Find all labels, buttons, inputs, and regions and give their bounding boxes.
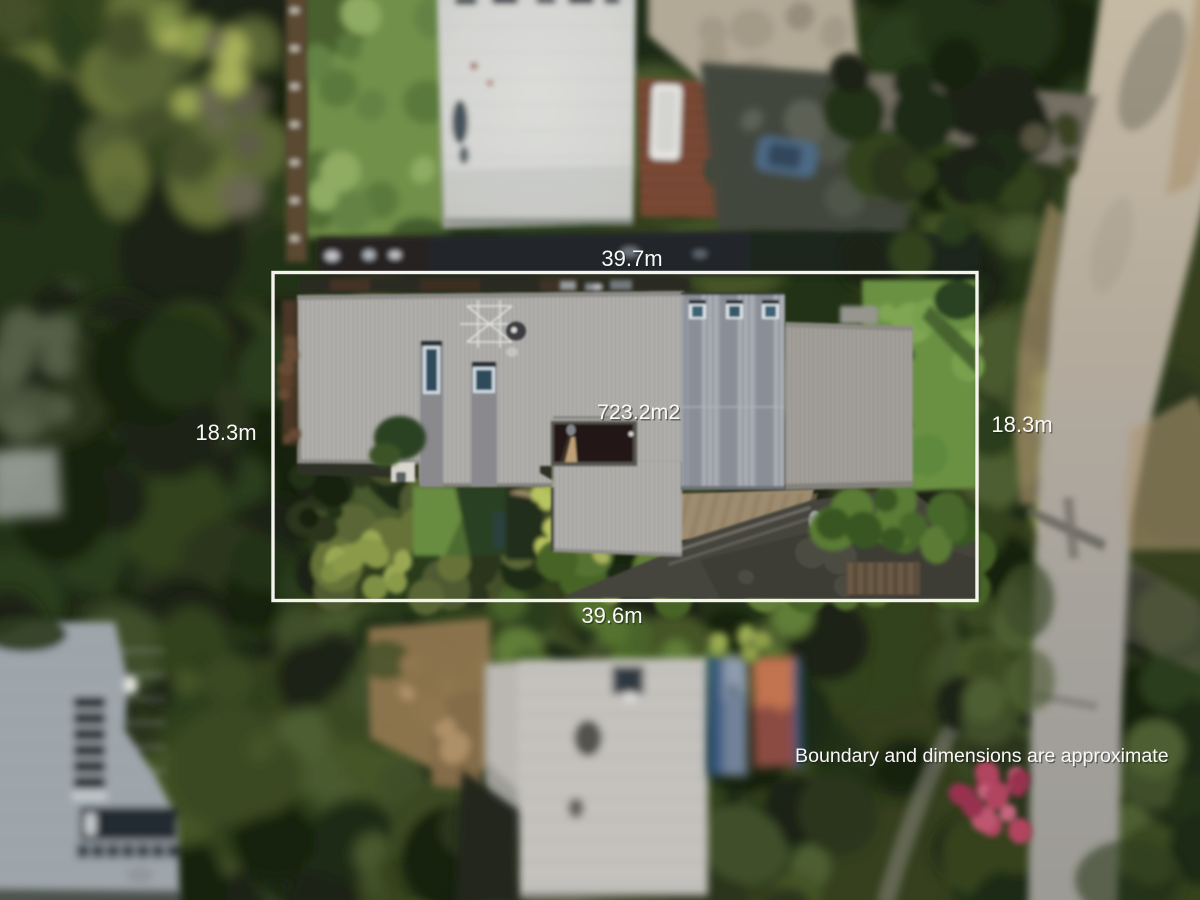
svg-text:723.2m2: 723.2m2 [597,400,680,424]
svg-text:39.7m: 39.7m [601,246,662,271]
svg-text:18.3m: 18.3m [991,412,1052,437]
svg-text:18.3m: 18.3m [195,420,256,445]
svg-text:Boundary and dimensions are ap: Boundary and dimensions are approximate [795,745,1169,767]
svg-text:39.6m: 39.6m [581,603,642,628]
